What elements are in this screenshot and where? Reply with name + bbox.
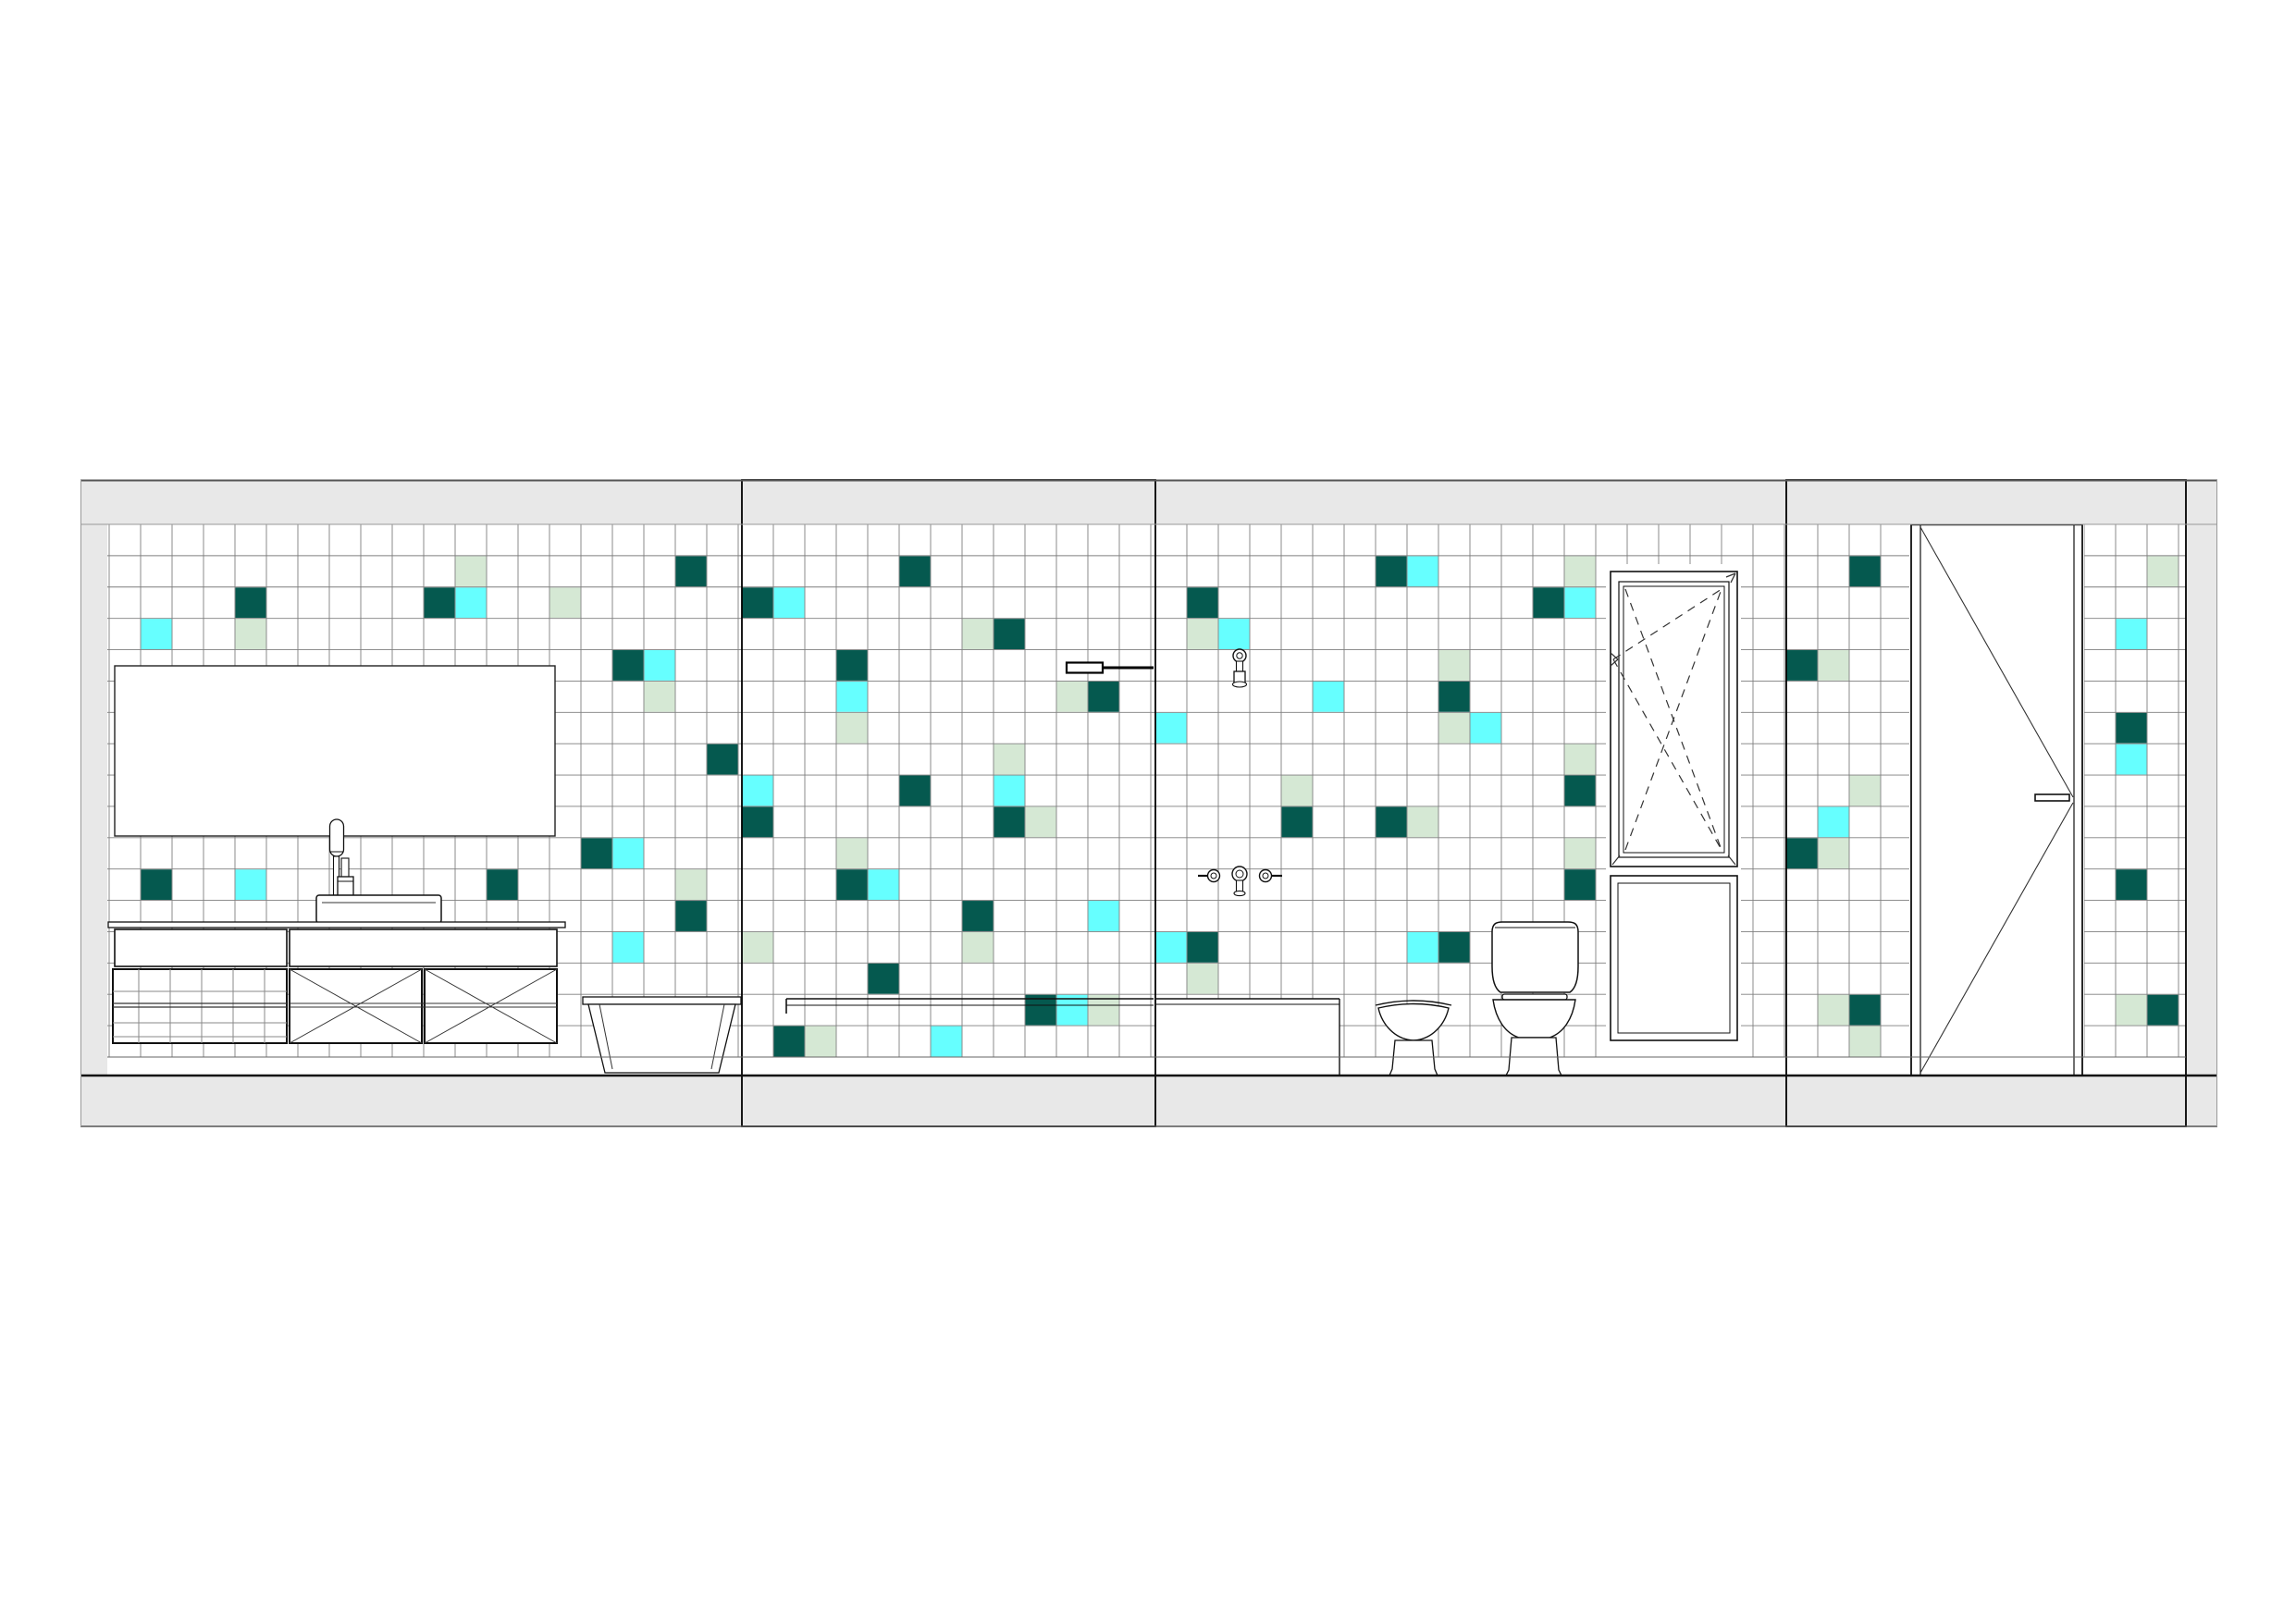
accent-tile bbox=[963, 932, 994, 963]
accent-tile bbox=[645, 650, 675, 681]
baseboard bbox=[107, 1057, 2186, 1076]
accent-tile bbox=[1850, 995, 1881, 1026]
accent-tile bbox=[1565, 744, 1596, 775]
wall-faucet-set bbox=[1198, 867, 1282, 896]
accent-tile bbox=[1565, 776, 1596, 806]
accent-tile bbox=[1314, 682, 1344, 712]
vanity-countertop bbox=[108, 922, 565, 928]
accent-tile bbox=[676, 556, 707, 586]
accent-tile bbox=[1439, 650, 1470, 681]
accent-tile bbox=[900, 556, 931, 586]
accent-tile bbox=[1408, 806, 1438, 837]
accent-tile bbox=[774, 587, 805, 618]
accent-tile bbox=[1439, 682, 1470, 712]
bathtub bbox=[583, 997, 741, 1073]
shower-mixer bbox=[1233, 649, 1247, 687]
toilet bbox=[1492, 922, 1578, 1076]
accent-tile bbox=[1188, 964, 1218, 994]
accent-tile bbox=[1188, 932, 1218, 963]
accent-tile bbox=[1057, 682, 1088, 712]
accent-tile bbox=[1282, 806, 1313, 837]
soap-dispenser bbox=[338, 858, 353, 897]
accent-tile bbox=[2117, 713, 2147, 744]
accent-tile bbox=[456, 556, 487, 586]
right-wall-edge bbox=[2186, 480, 2217, 1126]
accent-tile bbox=[1819, 806, 1849, 837]
accent-tile bbox=[2117, 744, 2147, 775]
accent-tile bbox=[837, 869, 868, 900]
accent-tile bbox=[869, 869, 899, 900]
accent-tile bbox=[900, 776, 931, 806]
accent-tile bbox=[236, 587, 266, 618]
accent-tile bbox=[1787, 838, 1818, 868]
accent-tile bbox=[837, 682, 868, 712]
accent-tile bbox=[456, 587, 487, 618]
vanity-drawers bbox=[115, 929, 557, 966]
accent-tile bbox=[1282, 776, 1313, 806]
tall-cabinet-window-unit bbox=[1606, 564, 1741, 1076]
accent-tile bbox=[613, 838, 644, 868]
accent-tile bbox=[488, 869, 518, 900]
accent-tile bbox=[1376, 806, 1407, 837]
accent-tile bbox=[1188, 587, 1218, 618]
entry-door bbox=[1909, 524, 2084, 1076]
accent-tile bbox=[1819, 995, 1849, 1026]
accent-tile bbox=[1565, 838, 1596, 868]
accent-tile bbox=[1819, 650, 1849, 681]
accent-tile bbox=[2148, 556, 2179, 586]
accent-tile bbox=[869, 964, 899, 994]
accent-tile bbox=[1219, 619, 1250, 649]
accent-tile bbox=[1408, 932, 1438, 963]
accent-tile bbox=[142, 869, 172, 900]
accent-tile bbox=[613, 932, 644, 963]
towel-shelf-unit bbox=[113, 969, 287, 1043]
elevation-sheet bbox=[0, 0, 2296, 1623]
accent-tile bbox=[743, 776, 773, 806]
accent-tile bbox=[2117, 869, 2147, 900]
accent-tile bbox=[1156, 713, 1187, 744]
accent-tile bbox=[613, 650, 644, 681]
wall-d-tiles-left bbox=[1786, 524, 1911, 1057]
accent-tile bbox=[1408, 556, 1438, 586]
accent-tile bbox=[1787, 650, 1818, 681]
accent-tile bbox=[1089, 901, 1119, 931]
ceiling-band bbox=[80, 480, 2217, 524]
accent-tile bbox=[1089, 682, 1119, 712]
vanity-mirror bbox=[115, 666, 555, 836]
accent-tile bbox=[645, 682, 675, 712]
accent-tile bbox=[1376, 556, 1407, 586]
vanity-basin bbox=[316, 895, 441, 923]
floor-band bbox=[80, 1076, 2217, 1126]
accent-tile bbox=[236, 619, 266, 649]
accent-tile bbox=[550, 587, 581, 618]
accent-tile bbox=[1026, 806, 1056, 837]
accent-tile bbox=[2148, 995, 2179, 1026]
accent-tile bbox=[2117, 995, 2147, 1026]
accent-tile bbox=[963, 619, 994, 649]
accent-tile bbox=[1819, 838, 1849, 868]
accent-tile bbox=[994, 806, 1025, 837]
accent-tile bbox=[1188, 619, 1218, 649]
accent-tile bbox=[236, 869, 266, 900]
accent-tile bbox=[425, 587, 455, 618]
vanity-x-doors bbox=[290, 969, 557, 1043]
accent-tile bbox=[837, 713, 868, 744]
accent-tile bbox=[676, 869, 707, 900]
accent-tile bbox=[932, 1027, 962, 1057]
accent-tile bbox=[806, 1027, 836, 1057]
accent-tile bbox=[1439, 713, 1470, 744]
accent-tile bbox=[994, 619, 1025, 649]
accent-tile bbox=[1534, 587, 1564, 618]
accent-tile bbox=[676, 901, 707, 931]
accent-tile bbox=[2117, 619, 2147, 649]
accent-tile bbox=[837, 838, 868, 868]
knee-wall bbox=[1156, 999, 1339, 1076]
accent-tile bbox=[743, 587, 773, 618]
accent-tile bbox=[963, 901, 994, 931]
accent-tile bbox=[1471, 713, 1501, 744]
accent-tile bbox=[837, 650, 868, 681]
accent-tile bbox=[1850, 556, 1881, 586]
accent-tile bbox=[582, 838, 612, 868]
accent-tile bbox=[1850, 776, 1881, 806]
accent-tile bbox=[1156, 932, 1187, 963]
accent-tile bbox=[743, 806, 773, 837]
accent-tile bbox=[1565, 869, 1596, 900]
shower-rail-bracket bbox=[1067, 663, 1154, 673]
accent-tile bbox=[1850, 1027, 1881, 1057]
wall-d-tiles-right bbox=[2082, 524, 2186, 1057]
accent-tile bbox=[774, 1027, 805, 1057]
accent-tile bbox=[994, 776, 1025, 806]
accent-tile bbox=[743, 932, 773, 963]
left-wall-edge bbox=[80, 480, 107, 1126]
accent-tile bbox=[994, 744, 1025, 775]
accent-tile bbox=[1565, 556, 1596, 586]
accent-tile bbox=[1439, 932, 1470, 963]
accent-tile bbox=[1565, 587, 1596, 618]
accent-tile bbox=[142, 619, 172, 649]
bathroom-elevation-drawing bbox=[0, 0, 2296, 1623]
accent-tile bbox=[708, 744, 738, 775]
